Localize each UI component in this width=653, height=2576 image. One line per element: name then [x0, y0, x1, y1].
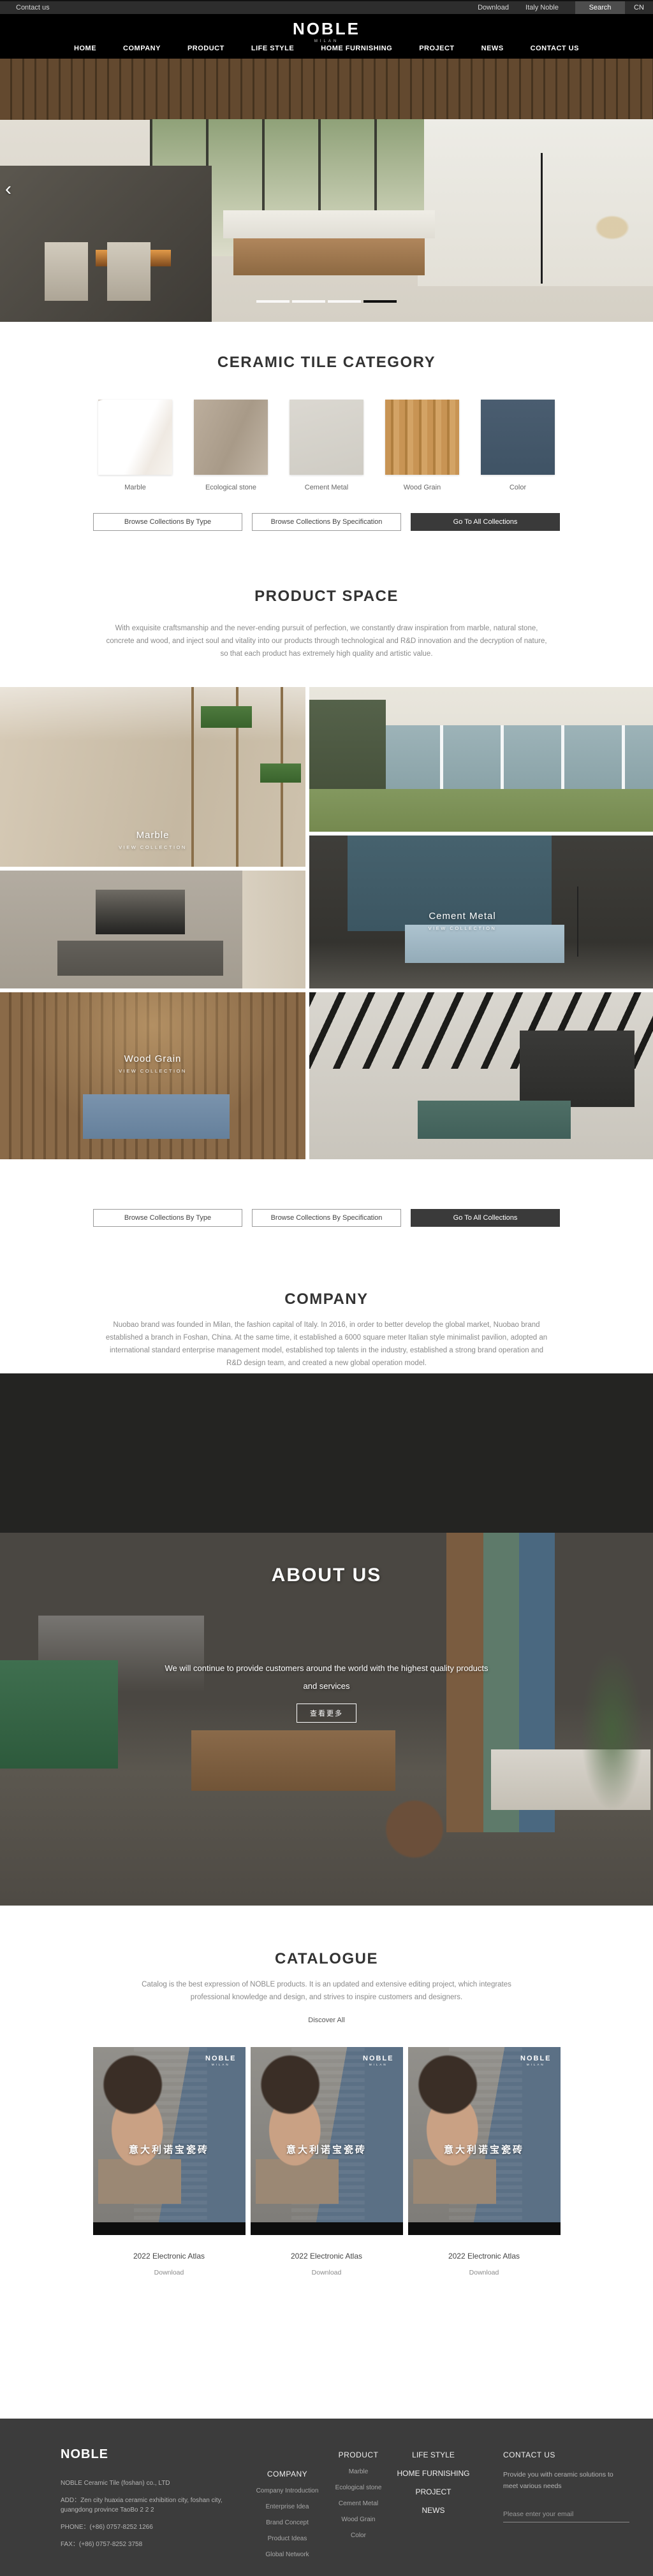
hero-carousel: ‹ [0, 59, 653, 322]
gallery-tile-living-room[interactable] [0, 871, 305, 988]
logo-block[interactable]: NOBLE MILAN [0, 19, 653, 43]
footer-column-product: PRODUCT Marble Ecological stone Cement M… [326, 2450, 390, 2539]
browse-by-type-button[interactable]: Browse Collections By Type [93, 513, 242, 531]
ecological-stone-label: Ecological stone [194, 484, 268, 491]
category-buttons-row: Browse Collections By Type Browse Collec… [0, 513, 653, 531]
category-item-wood-grain: Wood Grain [385, 400, 459, 491]
marble-view-collection-link[interactable]: VIEW COLLECTION [89, 844, 217, 850]
category-item-color: Color [481, 400, 555, 491]
ceramic-tile-category-section: CERAMIC TILE CATEGORY Marble Ecological … [0, 322, 653, 542]
carousel-prev-icon[interactable]: ‹ [5, 180, 11, 199]
catalogue-title: CATALOGUE [0, 1950, 653, 1968]
cement-metal-swatch-image[interactable] [290, 400, 363, 475]
category-item-cement-metal: Cement Metal [290, 400, 363, 491]
cement-metal-label: Cement Metal [290, 484, 363, 491]
cover-noble-logo: NOBLE [205, 2055, 237, 2062]
footer-link-company-introduction[interactable]: Company Introduction [251, 2487, 324, 2494]
about-us-text-line2: and services [0, 1681, 653, 1691]
cement-metal-tile-label: Cement Metal VIEW COLLECTION [399, 911, 526, 931]
nav-home-furnishing[interactable]: HOME FURNISHING [321, 45, 392, 52]
atlas-download-link-2[interactable]: Download [251, 2269, 403, 2276]
catalogue-description: Catalog is the best expression of NOBLE … [129, 1978, 524, 2004]
footer-link-project[interactable]: PROJECT [397, 2487, 470, 2496]
footer-link-wood-grain[interactable]: Wood Grain [326, 2516, 390, 2523]
footer-fax: FAX：(+86) 0757-8252 3758 [61, 2540, 246, 2549]
color-label: Color [481, 484, 555, 491]
catalogue-cover-image-1[interactable]: NOBLE MILAN 意大利诺宝瓷砖 [93, 2047, 246, 2235]
footer-link-enterprise-idea[interactable]: Enterprise Idea [251, 2503, 324, 2510]
footer-link-cement-metal[interactable]: Cement Metal [326, 2500, 390, 2507]
atlas-title-3: 2022 Electronic Atlas [408, 2252, 561, 2261]
company-description: Nuobao brand was founded in Milan, the f… [103, 1319, 550, 1370]
nav-company[interactable]: COMPANY [123, 45, 161, 52]
gallery-tile-wood-grain[interactable]: Wood Grain VIEW COLLECTION [0, 992, 305, 1159]
nav-home[interactable]: HOME [74, 45, 96, 52]
catalogue-item-2: NOBLE MILAN 意大利诺宝瓷砖 2022 Electronic Atla… [251, 2047, 403, 2276]
topbar-right-group: Download Italy Noble Search CN [478, 1, 653, 14]
cover-noble-logo: NOBLE [363, 2055, 394, 2062]
carousel-indicators [0, 300, 653, 303]
product-space-gallery: Marble VIEW COLLECTION Wood Grain VIEW C… [0, 687, 653, 1159]
cement-metal-tile-name: Cement Metal [399, 911, 526, 922]
catalogue-item-1: NOBLE MILAN 意大利诺宝瓷砖 2022 Electronic Atla… [93, 2047, 246, 2276]
company-title: COMPANY [0, 1291, 653, 1308]
site-header: NOBLE MILAN HOME COMPANY PRODUCT LIFE ST… [0, 14, 653, 59]
cover-brand-block: NOBLE MILAN [520, 2055, 552, 2066]
search-button[interactable]: Search [575, 1, 625, 14]
carousel-indicator-2[interactable] [292, 300, 325, 303]
footer-company-name: NOBLE Ceramic Tile (foshan) co., LTD [61, 2478, 246, 2488]
browse-by-specification-button-2[interactable]: Browse Collections By Specification [252, 1209, 401, 1227]
gallery-tile-house-exterior[interactable] [309, 687, 653, 832]
download-link[interactable]: Download [478, 4, 509, 11]
marble-label: Marble [98, 484, 172, 491]
company-section: COMPANY Nuobao brand was founded in Mila… [0, 1271, 653, 1373]
product-space-section: PRODUCT SPACE With exquisite craftsmansh… [0, 542, 653, 1271]
footer-noble-logo: NOBLE [61, 2447, 246, 2462]
noble-homepage: Contact us Download Italy Noble Search C… [0, 0, 653, 2576]
catalogue-cover-image-2[interactable]: NOBLE MILAN 意大利诺宝瓷砖 [251, 2047, 403, 2235]
color-swatch-image[interactable] [481, 400, 555, 475]
cover-headline-text: 意大利诺宝瓷砖 [251, 2143, 403, 2156]
catalogue-covers-row: NOBLE MILAN 意大利诺宝瓷砖 2022 Electronic Atla… [0, 2047, 653, 2276]
footer-address: ADD：Zen city huaxia ceramic exhibition c… [61, 2496, 246, 2515]
about-more-button[interactable]: 查看更多 [297, 1704, 356, 1723]
go-to-all-collections-button-2[interactable]: Go To All Collections [411, 1209, 560, 1227]
product-space-title: PRODUCT SPACE [0, 588, 653, 605]
footer-link-news[interactable]: NEWS [397, 2506, 470, 2515]
hero-slide-image [0, 59, 653, 322]
ecological-stone-swatch-image[interactable] [194, 400, 268, 475]
noble-logo: NOBLE [0, 19, 653, 39]
about-us-showroom-image [0, 1373, 653, 1906]
cover-milan-subtitle: MILAN [205, 2063, 237, 2066]
catalogue-item-3: NOBLE MILAN 意大利诺宝瓷砖 2022 Electronic Atla… [408, 2047, 561, 2276]
footer-link-product-ideas[interactable]: Product Ideas [251, 2535, 324, 2542]
email-subscribe-input[interactable] [503, 2507, 629, 2522]
footer-company-block: NOBLE NOBLE Ceramic Tile (foshan) co., L… [61, 2447, 246, 2549]
cover-headline-text: 意大利诺宝瓷砖 [408, 2143, 561, 2156]
wood-grain-view-collection-link[interactable]: VIEW COLLECTION [89, 1068, 217, 1074]
cover-milan-subtitle: MILAN [520, 2063, 552, 2066]
footer-contact-column: CONTACT US Provide you with ceramic solu… [503, 2450, 631, 2522]
about-us-title: ABOUT US [0, 1565, 653, 1586]
about-us-banner: ABOUT US We will continue to provide cus… [0, 1373, 653, 1906]
nav-project[interactable]: PROJECT [419, 45, 454, 52]
category-item-ecological-stone: Ecological stone [194, 400, 268, 491]
gallery-right-column: Cement Metal VIEW COLLECTION [309, 687, 653, 1159]
atlas-download-link-1[interactable]: Download [93, 2269, 246, 2276]
wood-grain-label: Wood Grain [385, 484, 459, 491]
marble-tile-name: Marble [89, 830, 217, 841]
discover-all-link[interactable]: Discover All [308, 2016, 344, 2024]
carousel-indicator-1[interactable] [256, 300, 290, 303]
atlas-download-link-3[interactable]: Download [408, 2269, 561, 2276]
top-utility-bar: Contact us Download Italy Noble Search C… [0, 0, 653, 14]
wood-grain-tile-label: Wood Grain VIEW COLLECTION [89, 1053, 217, 1074]
footer-link-marble[interactable]: Marble [326, 2468, 390, 2475]
nav-life-style[interactable]: LIFE STYLE [251, 45, 294, 52]
footer-phone: PHONE：(+86) 0757-8252 1266 [61, 2522, 246, 2532]
marble-tile-label: Marble VIEW COLLECTION [89, 830, 217, 850]
product-space-buttons-row: Browse Collections By Type Browse Collec… [0, 1209, 653, 1227]
cover-noble-logo: NOBLE [520, 2055, 552, 2062]
gallery-left-column: Marble VIEW COLLECTION Wood Grain VIEW C… [0, 687, 305, 1159]
nav-product[interactable]: PRODUCT [187, 45, 224, 52]
contact-us-link[interactable]: Contact us [16, 4, 50, 11]
wood-grain-swatch-image[interactable] [385, 400, 459, 475]
go-to-all-collections-button[interactable]: Go To All Collections [411, 513, 560, 531]
cover-milan-subtitle: MILAN [363, 2063, 394, 2066]
footer-link-brand-concept[interactable]: Brand Concept [251, 2519, 324, 2526]
italy-noble-link[interactable]: Italy Noble [525, 4, 559, 11]
atlas-title-1: 2022 Electronic Atlas [93, 2252, 246, 2261]
nav-contact-us[interactable]: CONTACT US [531, 45, 579, 52]
category-section-title: CERAMIC TILE CATEGORY [0, 354, 653, 372]
category-swatch-row: Marble Ecological stone Cement Metal Woo… [0, 400, 653, 491]
gallery-tile-marble[interactable]: Marble VIEW COLLECTION [0, 687, 305, 867]
browse-by-type-button-2[interactable]: Browse Collections By Type [93, 1209, 242, 1227]
cover-headline-text: 意大利诺宝瓷砖 [93, 2143, 246, 2156]
about-us-text-line1: We will continue to provide customers ar… [0, 1663, 653, 1673]
footer-link-global-network[interactable]: Global Network [251, 2551, 324, 2558]
footer-link-home-furnishing[interactable]: HOME FURNISHING [397, 2469, 470, 2478]
main-navigation: HOME COMPANY PRODUCT LIFE STYLE HOME FUR… [0, 45, 653, 52]
gallery-tile-dark-lounge[interactable] [309, 992, 653, 1159]
site-footer: NOBLE NOBLE Ceramic Tile (foshan) co., L… [0, 2419, 653, 2576]
carousel-indicator-3[interactable] [328, 300, 361, 303]
footer-link-life-style[interactable]: LIFE STYLE [397, 2450, 470, 2459]
product-space-description: With exquisite craftsmanship and the nev… [103, 622, 550, 660]
cover-brand-block: NOBLE MILAN [205, 2055, 237, 2066]
language-toggle[interactable]: CN [625, 4, 653, 11]
footer-link-color[interactable]: Color [326, 2532, 390, 2539]
cover-bottom-strip [93, 2222, 246, 2235]
logo-subtitle: MILAN [0, 40, 653, 43]
cover-bottom-strip [408, 2222, 561, 2235]
footer-link-ecological-stone[interactable]: Ecological stone [326, 2484, 390, 2491]
footer-contact-text: Provide you with ceramic solutions to me… [503, 2470, 615, 2493]
gallery-tile-cement-metal[interactable]: Cement Metal VIEW COLLECTION [309, 836, 653, 988]
footer-column-company: COMPANY Company Introduction Enterprise … [251, 2450, 324, 2552]
browse-by-specification-button[interactable]: Browse Collections By Specification [252, 513, 401, 531]
atlas-title-2: 2022 Electronic Atlas [251, 2252, 403, 2261]
nav-news[interactable]: NEWS [481, 45, 504, 52]
footer-company-heading[interactable]: COMPANY [251, 2470, 324, 2478]
catalogue-section: CATALOGUE Catalog is the best expression… [0, 1906, 653, 2419]
category-item-marble: Marble [98, 400, 172, 491]
cover-brand-block: NOBLE MILAN [363, 2055, 394, 2066]
cement-metal-view-collection-link[interactable]: VIEW COLLECTION [399, 925, 526, 931]
footer-contact-heading[interactable]: CONTACT US [503, 2450, 631, 2459]
footer-product-heading[interactable]: PRODUCT [326, 2450, 390, 2459]
carousel-indicator-4-active[interactable] [363, 300, 397, 303]
cover-bottom-strip [251, 2222, 403, 2235]
catalogue-cover-image-3[interactable]: NOBLE MILAN 意大利诺宝瓷砖 [408, 2047, 561, 2235]
discover-all-wrap: Discover All [0, 2016, 653, 2024]
footer-nav-stack: LIFE STYLE HOME FURNISHING PROJECT NEWS [397, 2450, 470, 2524]
wood-grain-tile-name: Wood Grain [89, 1053, 217, 1064]
marble-swatch-image[interactable] [98, 400, 172, 475]
